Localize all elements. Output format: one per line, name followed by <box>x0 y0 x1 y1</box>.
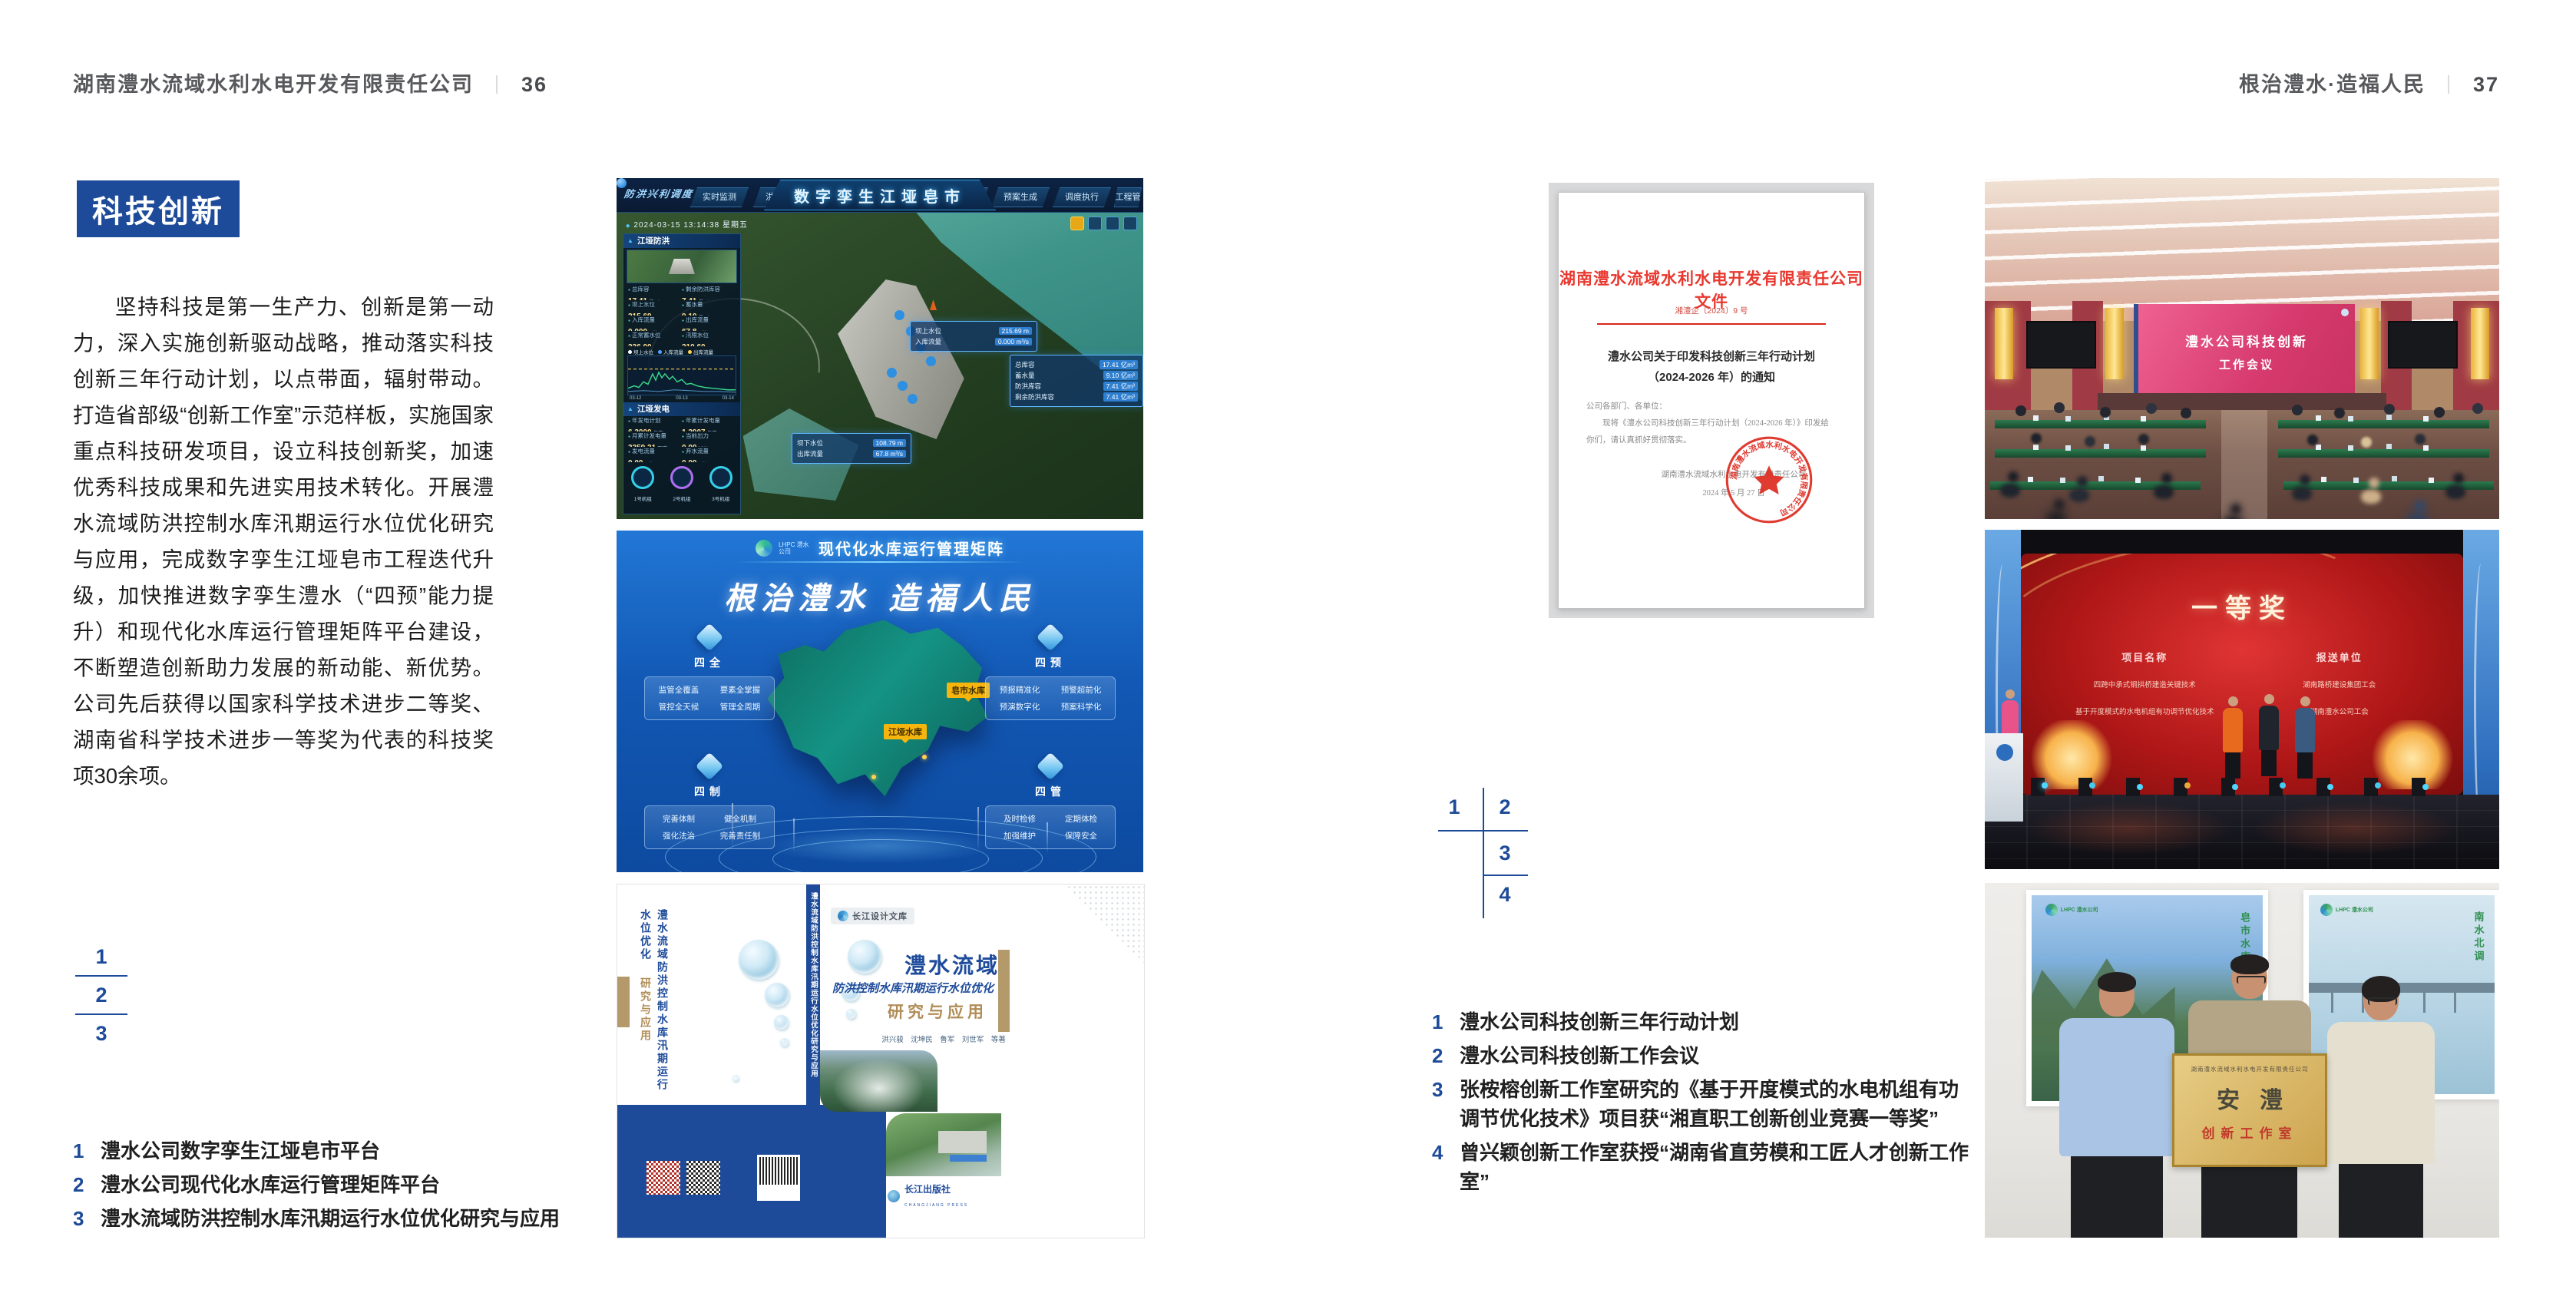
award-row-org: 湖南路桥建设集团工会 <box>2242 679 2437 689</box>
audience-heads <box>1985 178 1996 189</box>
halftone-decor <box>1029 884 1144 965</box>
panel-power-title: 江垭发电 <box>623 402 740 416</box>
stat: 月累计发电量3359.21万度 <box>628 433 682 447</box>
caption-text: 张桉榕创新工作室研究的《基于开度模式的水电机组有功调节优化技术》项目获“湘直职工… <box>1460 1075 1969 1133</box>
figure-award-photo: 一等奖 项目名称 报送单位 四跨中承式钢拱桥建造关键技术 湖南路桥建设集团工会 … <box>1985 530 2499 869</box>
book-title: 澧水流域 <box>898 949 1006 980</box>
caption-row: 2澧水公司现代化水库运行管理矩阵平台 <box>73 1170 595 1199</box>
dam-structure <box>838 279 964 439</box>
award-row-project: 四跨中承式钢拱桥建造关键技术 <box>2047 679 2242 689</box>
column-org: 报送单位 <box>2251 650 2428 664</box>
stat: 年累计发电量1.2907亿度 <box>682 418 736 431</box>
floor-reflection <box>2252 802 2458 856</box>
dam-thumbnail <box>627 250 737 283</box>
map-dot <box>871 775 876 779</box>
gauge-unit1: 1号机组 <box>631 466 654 504</box>
book-authors: 洪兴骏 沈坤民 鲁军 刘世军 等著 <box>878 1033 1009 1044</box>
dam-hillside-photo <box>886 1113 1001 1176</box>
map-label-zaoshi: 皂市水库 <box>947 683 990 698</box>
water-droplet <box>846 1009 856 1019</box>
lhpc-logo: LHPC 澧水公司 <box>2320 904 2373 916</box>
dashboard-top-bar: 防洪兴利调度 实时监测 洪水预报 防洪预警 风险预测 预案生成 调度执行 工程管… <box>617 178 1143 213</box>
caption-number: 2 <box>1432 1041 1460 1070</box>
maintenance-icon <box>1037 752 1065 781</box>
lhpc-logo: LHPC 澧水公司 <box>2045 904 2098 916</box>
publisher-logo-icon <box>838 911 848 921</box>
logo-text: LHPC 澧水公司 <box>779 541 812 555</box>
wall-lamp <box>1995 308 2012 379</box>
light-pillar <box>1047 822 1048 855</box>
header-glow-line <box>734 561 1026 563</box>
unit-gauges: 1号机组 2号机组 3号机组 <box>623 464 740 504</box>
caption-text: 澧水公司数字孪生江垭皂市平台 <box>101 1136 595 1165</box>
document-paper: 湖南澧水流域水利水电开发有限责任公司文件 湘澧企〔2024〕9 号 澧水公司关于… <box>1558 192 1865 609</box>
stat: 坝上水位215.69m <box>628 302 682 316</box>
stage-lights <box>2031 778 2452 796</box>
figure-book-cover: 澧水流域防洪控制水库汛期运行水位优化 研究与应用 澧水流域防洪控制水库汛期运行水… <box>617 884 1145 1238</box>
presenter-suit <box>2257 694 2280 776</box>
header-divider: ｜ <box>488 75 508 96</box>
stat: 年发电计划6.3000亿度 <box>628 418 682 431</box>
company-logo-icon <box>756 540 772 557</box>
person-right <box>2320 979 2442 1238</box>
light-lenses <box>2042 782 2048 789</box>
stat: 当前出力0.00MW <box>682 433 736 447</box>
flood-stats: 总库容17.41亿m³ 剩余防洪库容7.41亿m³ 坝上水位215.69m 蓄水… <box>623 285 740 348</box>
award-row-project: 基于开度模式的水电机组有功调节优化技术 <box>2047 706 2242 716</box>
caption-number: 3 <box>1432 1075 1460 1133</box>
wall-tv <box>2026 321 2096 369</box>
figure-official-document: 湖南澧水流域水利水电开发有限责任公司文件 湘澧企〔2024〕9 号 澧水公司关于… <box>1549 183 1874 618</box>
water-level-chart <box>627 355 736 395</box>
left-data-panel: 江垭防洪 总库容17.41亿m³ 剩余防洪库容7.41亿m³ 坝上水位215.6… <box>623 233 741 514</box>
water-droplet <box>774 1015 789 1030</box>
caption-number: 1 <box>73 1136 101 1165</box>
qr-code <box>686 1161 720 1195</box>
caption-text: 澧水公司科技创新工作会议 <box>1460 1041 1969 1070</box>
red-rule <box>1597 323 1826 325</box>
plaque-subtitle: 创新工作室 <box>2174 1122 2325 1142</box>
monitor-icon <box>696 623 724 652</box>
desk-row <box>1995 420 2206 428</box>
index-vline <box>1483 788 1484 918</box>
figure-number: 1 <box>75 938 127 975</box>
water-droplet <box>848 940 881 974</box>
stat: 入库流量0.000m³/s <box>628 317 682 331</box>
tab-plan-generation: 预案生成 <box>991 187 1050 207</box>
chart-x-axis: 03-1203-1303-14 <box>623 396 740 402</box>
ripple-ring <box>772 839 989 872</box>
book-spine: 澧水流域防洪控制水库汛期运行水位优化研究与应用 <box>806 884 820 1238</box>
desk-row <box>2278 420 2489 428</box>
caption-number: 3 <box>73 1204 101 1233</box>
left-page-number: 36 <box>521 73 547 96</box>
plaque-company-line: 湖南澧水流域水利水电开发有限责任公司 <box>2174 1065 2325 1073</box>
timestamp: 2024-03-15 13:14:38 星期五 <box>626 218 748 230</box>
locate-icon <box>1106 217 1119 230</box>
front-accent-bar <box>998 950 1010 1032</box>
caption-text: 澧水公司科技创新三年行动计划 <box>1460 1007 1969 1037</box>
light-pillar <box>977 807 979 851</box>
podium <box>1985 733 2023 822</box>
column-project: 项目名称 <box>2056 650 2233 664</box>
back-accent-bar <box>617 977 630 1027</box>
awardee-blue <box>2293 696 2316 779</box>
wall-tv <box>2388 321 2458 369</box>
floor-reflection <box>2026 802 2232 856</box>
caption-number: 1 <box>1432 1007 1460 1037</box>
glasses <box>2368 997 2397 1005</box>
water-droplet <box>739 940 779 980</box>
water-droplet <box>780 1038 789 1046</box>
stat: 剩余防洪库容7.41亿m³ <box>682 286 736 300</box>
layers-icon <box>1088 217 1102 230</box>
right-captions: 1澧水公司科技创新三年行动计划 2澧水公司科技创新工作会议 3张桉榕创新工作室研… <box>1432 1007 1969 1201</box>
stat: 出库流量67.8m³/s <box>682 317 736 331</box>
wall-lamp <box>2471 308 2488 379</box>
figure-number: 2 <box>75 977 127 1013</box>
left-captions: 1澧水公司数字孪生江垭皂市平台 2澧水公司现代化水库运行管理矩阵平台 3澧水流域… <box>73 1136 595 1238</box>
panel-flood-title: 江垭防洪 <box>623 234 740 248</box>
stat: 弃水流量0.00m³/s <box>682 448 736 462</box>
section-title: 科技创新 <box>77 180 240 237</box>
light-pillar <box>732 803 733 849</box>
plaque-name: 安澧 <box>2174 1081 2325 1115</box>
stat: 蓄水量9.10亿m³ <box>682 302 736 316</box>
caption-number: 2 <box>73 1170 101 1199</box>
innovation-studio-plaque: 湖南澧水流域水利水电开发有限责任公司 安澧 创新工作室 <box>2172 1053 2327 1167</box>
index-hline <box>1438 830 1528 832</box>
left-figure-index: 1 2 3 <box>75 938 127 1052</box>
desk-row <box>2278 449 2489 458</box>
water-droplet <box>765 983 789 1007</box>
book-subtitle2: 研究与应用 <box>888 1000 987 1023</box>
platform-header: LHPC 澧水公司 现代化水库运行管理矩阵 <box>756 537 1004 559</box>
official-seal: 湖南澧水流域水利水电开发有限责任公司 <box>1721 432 1817 527</box>
stat: 正常蓄水位236.00m <box>628 332 682 346</box>
settings-icon <box>1123 217 1137 230</box>
figure-digital-twin-dashboard: 防洪兴利调度 实时监测 洪水预报 防洪预警 风险预测 预案生成 调度执行 工程管… <box>617 178 1143 519</box>
caption-text: 澧水公司现代化水库运行管理矩阵平台 <box>101 1170 595 1199</box>
center-aisle <box>2221 410 2267 519</box>
caption-number: 4 <box>1432 1138 1460 1196</box>
desk-row <box>1990 481 2201 490</box>
stat: 汛限水位210.60m <box>682 332 736 346</box>
right-page-number: 37 <box>2473 73 2499 96</box>
caption-row: 4曾兴颖创新工作室获授“湖南省直劳模和工匠人才创新工作室” <box>1432 1138 1969 1196</box>
index-hline <box>1483 875 1528 876</box>
figure-number: 3 <box>1490 841 1520 865</box>
tab-dispatch-execution: 调度执行 <box>1053 187 1111 207</box>
light-pillar <box>793 818 795 853</box>
figure-number: 4 <box>1490 883 1520 907</box>
menu-label: 防洪兴利调度 <box>623 186 695 200</box>
capacity-tooltip: 总库容17.41 亿m³ 蓄水量9.10 亿m³ 防洪库容7.41 亿m³ 剩余… <box>1010 355 1143 407</box>
gauge-unit3: 3号机组 <box>709 466 732 504</box>
caption-row: 3张桉榕创新工作室研究的《基于开度模式的水电机组有功调节优化技术》项目获“湘直职… <box>1432 1075 1969 1133</box>
changjiang-press-icon <box>888 1190 900 1202</box>
caption-row: 1澧水公司数字孪生江垭皂市平台 <box>73 1136 595 1165</box>
caption-text: 澧水流域防洪控制水库汛期运行水位优化研究与应用 <box>101 1204 595 1233</box>
body-paragraph: 坚持科技是第一生产力、创新是第一动力，深入实施创新驱动战略，推动落实科技创新三年… <box>73 289 494 794</box>
tab-project-management: 工程管理 <box>1114 187 1142 207</box>
desk-row <box>2283 481 2495 490</box>
alert-icon <box>1070 217 1084 230</box>
water-droplet <box>732 1075 739 1081</box>
dam-valley-photo <box>820 1050 937 1112</box>
awardee-orange <box>2221 696 2244 779</box>
book-subtitle: 防洪控制水库汛期运行水位优化 <box>826 980 1000 996</box>
forecast-icon <box>1037 623 1065 652</box>
logo-dot <box>2341 309 2349 316</box>
figure-meeting-photo: 澧水公司科技创新 工作会议 <box>1985 178 2499 519</box>
map-dot <box>922 755 927 759</box>
qr-code <box>646 1161 680 1195</box>
caption-row: 1澧水公司科技创新三年行动计划 <box>1432 1007 1969 1037</box>
figure-number: 2 <box>1490 795 1520 819</box>
building-icon <box>696 752 724 781</box>
award-title: 一等奖 <box>2021 587 2463 625</box>
tab-realtime-monitor: 实时监测 <box>690 187 749 207</box>
panel-siyu: 四预 预报精准化预警超前化 预演数字化预案科学化 <box>985 627 1116 720</box>
caption-row: 2澧水公司科技创新工作会议 <box>1432 1041 1969 1070</box>
slogan-text: 根治澧水·造福人民 <box>2239 73 2426 96</box>
host-figure <box>2000 689 2020 740</box>
figure-number: 3 <box>75 1015 127 1052</box>
wall-lamp <box>2360 308 2378 379</box>
toolbar-icons <box>1070 217 1137 230</box>
publisher-block: 长江出版社CHANGJIANG PRESS <box>888 1182 968 1210</box>
stat: 发电流量0.00m³/s <box>628 448 682 462</box>
gold-swoosh <box>2021 554 2383 716</box>
series-badge: 长江设计文库 <box>831 908 914 924</box>
dashboard-title: 数字孪生江垭皂市 <box>764 180 996 210</box>
calligraphy-slogan: 根治澧水 造福人民 <box>617 574 1143 618</box>
upstream-tooltip: 坝上水位215.69 m 入库流量0.000 m³/s <box>910 321 1037 352</box>
document-title: 澧水公司关于印发科技创新三年行动计划 （2024-2026 年）的通知 <box>1559 346 1864 388</box>
platform-title: 现代化水库运行管理矩阵 <box>818 537 1004 559</box>
stat: 总库容17.41亿m³ <box>628 286 682 300</box>
figure-matrix-platform: LHPC 澧水公司 现代化水库运行管理矩阵 根治澧水 造福人民 皂市水库 江垭水… <box>617 531 1143 872</box>
back-cover-title: 澧水流域防洪控制水库汛期运行水位优化 研究与应用 <box>637 909 671 1093</box>
caption-row: 3澧水流域防洪控制水库汛期运行水位优化研究与应用 <box>73 1204 595 1233</box>
map-label-jiangya: 江垭水库 <box>884 724 927 739</box>
gauge-unit2: 2号机组 <box>670 466 693 504</box>
document-number: 湘澧企〔2024〕9 号 <box>1559 305 1864 316</box>
wall-lamp <box>2105 308 2123 379</box>
figure-number: 1 <box>1439 795 1470 819</box>
glasses <box>2237 976 2266 984</box>
power-stats: 年发电计划6.3000亿度 年累计发电量1.2907亿度 月累计发电量3359.… <box>623 416 740 464</box>
chart-legend: 坝上水位 入库流量 出库流量 <box>623 348 740 355</box>
poster-calligraphy: 南水北调 <box>2471 911 2485 964</box>
projection-screen: 澧水公司科技创新 工作会议 <box>2134 304 2354 399</box>
right-page-header: 根治澧水·造福人民｜37 <box>2239 68 2499 98</box>
basin-3d-map <box>757 609 1000 820</box>
panel-siquan: 四全 监管全覆盖要素全掌握 管控全天候管理全周期 <box>644 627 775 720</box>
figure-plaque-photo: LHPC 澧水公司 皂市水库 LHPC 澧水公司 南水北调 <box>1985 883 2499 1238</box>
brochure-spread: 湖南澧水流域水利水电开发有限责任公司｜36 根治澧水·造福人民｜37 科技创新 … <box>0 0 2576 1306</box>
left-page-header: 湖南澧水流域水利水电开发有限责任公司｜36 <box>73 68 547 98</box>
person-left <box>2052 975 2182 1238</box>
downstream-tooltip: 坝下水位108.79 m 出库流量67.8 m³/s <box>792 433 911 464</box>
barcode <box>757 1155 800 1201</box>
company-name: 湖南澧水流域水利水电开发有限责任公司 <box>73 73 474 96</box>
gate-markers <box>617 178 627 188</box>
header-divider: ｜ <box>2439 75 2459 96</box>
desk-row <box>1995 449 2206 458</box>
caption-text: 曾兴颖创新工作室获授“湖南省直劳模和工匠人才创新工作室” <box>1460 1138 1969 1196</box>
